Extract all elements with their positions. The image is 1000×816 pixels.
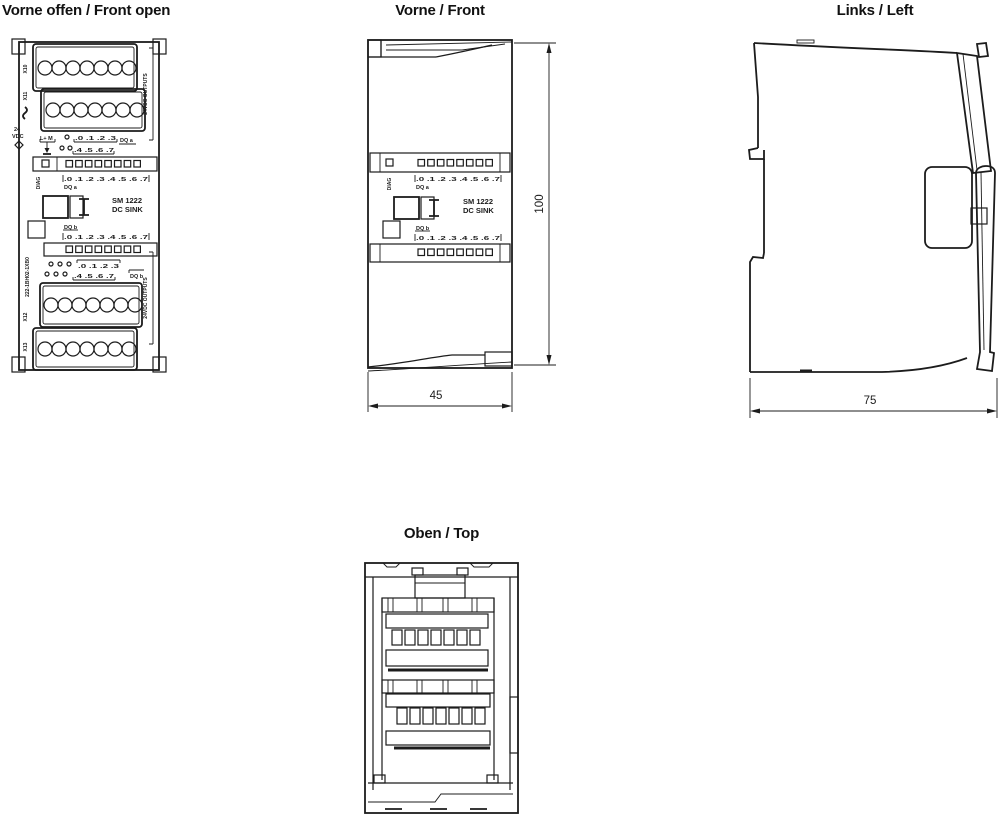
dimension-width: 45: [368, 372, 512, 412]
label-group-b-high: .4 .5 .6 .7: [74, 274, 114, 280]
label-part-number: 222-1BH02-1XB0: [25, 257, 31, 297]
ground-icon: [43, 142, 51, 154]
terminal-row-b: .0 .1 .2 .3 .4 .5 .6 .7 DQ b: [45, 260, 144, 280]
view-front-open: X10 X11 24 VDC L+ M .0 .1 .2 .3 DQ a .4 …: [0, 30, 210, 420]
label-dqb-bottom: DQ b: [130, 274, 144, 280]
label-x13: X13: [23, 342, 29, 351]
module-name: SM 1222: [112, 196, 142, 205]
drawing-canvas: Vorne offen / Front open Vorne / Front L…: [0, 0, 1000, 816]
dimension-depth-value: 75: [864, 395, 877, 407]
led-band-a-front: [370, 153, 510, 172]
label-supply-terminals: L+ M: [40, 136, 53, 142]
terminal-connector-x12: [40, 283, 142, 327]
label-supply-vdc: VDC: [12, 134, 24, 140]
title-left: Links / Left: [750, 2, 1000, 19]
terminal-connector-x10: [33, 44, 137, 91]
led-band-b: [44, 243, 157, 256]
module-type-front: DC SINK: [463, 206, 494, 215]
plug-icon: [23, 107, 27, 119]
top-bottom-section: [368, 697, 518, 809]
label-outputs-top: 24VDC OUTPUTS: [143, 73, 149, 115]
dimension-depth: 75: [750, 378, 997, 418]
module-type: DC SINK: [112, 205, 143, 214]
view-front: DIAG .0 .1 .2 .3 .4 .5 .6 .7 DQ a SM 122…: [360, 30, 570, 420]
title-top: Oben / Top: [365, 525, 518, 542]
din-rail-tab: [412, 568, 468, 598]
label-dqa-top: DQ a: [120, 138, 134, 144]
label-dqa-front: DQ a: [416, 185, 430, 191]
label-outputs-bottom: 24VDC OUTPUTS: [143, 277, 149, 319]
label-group-a-high: .4 .5 .6 .7: [74, 148, 114, 154]
dimension-width-value: 45: [430, 390, 443, 402]
address-switch-front: [394, 197, 439, 219]
led-scale-b-front: .0 .1 .2 .3 .4 .5 .6 .7: [416, 236, 500, 242]
label-group-b-low: .0 .1 .2 .3: [78, 264, 119, 270]
label-x11: X11: [23, 91, 29, 100]
left-outline: [749, 40, 991, 372]
terminal-row-a: L+ M .0 .1 .2 .3 DQ a .4 .5 .6 .7: [40, 135, 136, 154]
view-top: [350, 555, 535, 816]
address-switch: [43, 196, 89, 218]
mode-button-front: [383, 221, 400, 238]
terminal-connector-x13: [33, 328, 137, 370]
label-x10: X10: [23, 64, 29, 73]
led-band-a: [33, 157, 157, 171]
label-diag-front: DIAG: [387, 178, 393, 191]
label-group-a-low: .0 .1 .2 .3: [75, 136, 116, 142]
mode-button: [28, 221, 45, 238]
dimension-height: 100: [514, 43, 556, 365]
led-scale-a-front: .0 .1 .2 .3 .4 .5 .6 .7: [416, 177, 500, 183]
view-left: 75: [740, 30, 1000, 420]
led-scale-a: .0 .1 .2 .3 .4 .5 .6 .7: [64, 177, 148, 183]
label-supply-24: 24: [14, 127, 21, 133]
title-front: Vorne / Front: [360, 2, 520, 19]
top-terminal-block-2: [382, 680, 494, 748]
title-front-open: Vorne offen / Front open: [2, 2, 170, 19]
dimension-height-value: 100: [534, 194, 546, 213]
top-terminal-block-1: [382, 598, 494, 670]
led-scale-b: .0 .1 .2 .3 .4 .5 .6 .7: [64, 235, 148, 241]
terminal-connector-x11: [41, 89, 145, 131]
label-dqa-led: DQ a: [64, 185, 78, 191]
led-band-b-front: [370, 244, 510, 262]
module-name-front: SM 1222: [463, 197, 493, 206]
label-x12: X12: [23, 312, 29, 321]
label-diag-a: DIAG: [36, 177, 42, 190]
din-rail-clip: [925, 166, 995, 371]
